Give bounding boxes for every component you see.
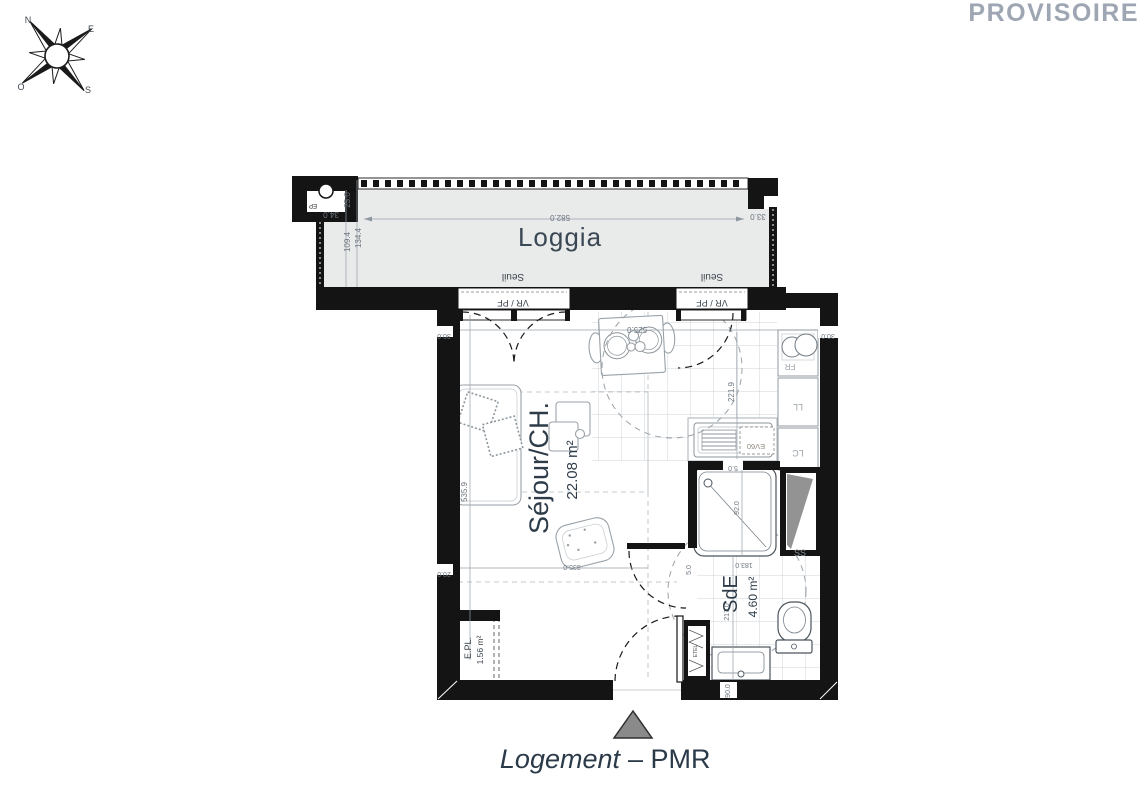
- dim-183: 183.0: [735, 561, 753, 568]
- compass-label-n: N: [25, 15, 32, 25]
- sink-drainboard: [702, 430, 736, 450]
- ep-drain-circle: [319, 184, 333, 198]
- epl-area: 1.56 m²: [475, 635, 485, 664]
- dim-90: 90.0: [725, 684, 732, 698]
- dim-5-top: 5.0: [728, 464, 738, 471]
- sde-title: SdE: [720, 575, 742, 613]
- seuil-label-2: Seuil: [701, 271, 723, 282]
- appliance-lc-label: LC: [792, 448, 804, 458]
- appliance-ll-label: LL: [793, 402, 803, 412]
- appliance-fr-label: FR: [784, 362, 795, 371]
- dim-20: 20.0: [437, 570, 451, 577]
- sink-label-ev60: EV60: [747, 442, 765, 451]
- technical-duct: [780, 467, 820, 556]
- dim-525: 525.0: [626, 325, 647, 334]
- sejour-title: Séjour/CH.: [524, 402, 554, 534]
- footer-title-name: Logement: [500, 744, 622, 774]
- wall-right: [820, 300, 838, 700]
- compass-star: [0, 0, 119, 118]
- dim-34: 34.0: [323, 210, 339, 219]
- etel-closet: ETEL: [684, 620, 710, 682]
- window-1-label: VR / PF: [497, 298, 529, 308]
- dim-134: 134.4: [354, 227, 363, 248]
- door-arc-entrance: [615, 616, 677, 681]
- footer: Logement – PMR: [500, 711, 711, 774]
- faucet-circle: [738, 671, 744, 677]
- ep-label: EP: [309, 202, 317, 208]
- toilet-tank: [776, 640, 812, 653]
- dim-5-door: 5.0: [686, 565, 693, 575]
- dim-30-left: 30.0: [437, 332, 451, 339]
- dim-30-right: 30.0: [821, 332, 835, 339]
- loggia-title: Loggia: [518, 222, 602, 252]
- door-arc-bath: [629, 551, 686, 608]
- window-frame-2: [678, 310, 746, 320]
- dim-92: 92.0: [734, 501, 741, 515]
- entrance-marker-triangle: [614, 711, 652, 738]
- appliance-ll: [778, 378, 818, 426]
- epl-wall-stub: [460, 610, 500, 621]
- footer-title-type: – PMR: [628, 744, 711, 774]
- sejour-area: 22.08 m²: [564, 440, 581, 499]
- room-sejour: FR LL LC EV60: [440, 298, 820, 682]
- dining-table: [588, 315, 677, 376]
- seuil-label-1: Seuil: [502, 271, 524, 282]
- kitchen-counter: EV60: [688, 418, 777, 461]
- dim-535: 535.9: [460, 481, 469, 502]
- compass-label-o: O: [17, 82, 24, 92]
- etel-label: ETEL: [693, 645, 699, 658]
- window-1: VR / PF: [458, 288, 570, 321]
- entrance-gap: [609, 680, 685, 700]
- wall-left: [437, 310, 460, 700]
- window-2-label: VR / PF: [696, 298, 728, 308]
- dim-582: 582.0: [549, 213, 570, 222]
- label-ss: SS: [794, 548, 806, 558]
- armchair: [553, 515, 616, 571]
- compass-label-s: S: [85, 85, 91, 95]
- floor-plan-canvas: PROVISOIRE N E O S EP: [0, 0, 1141, 800]
- lamp-circle: [576, 430, 585, 439]
- toilet: [776, 602, 812, 653]
- dim-221: 221.9: [727, 381, 736, 402]
- compass-label-e: E: [88, 24, 94, 34]
- wall-bath-left: [688, 461, 697, 548]
- sde-area: 4.60 m²: [746, 577, 760, 618]
- dim-25: 25.0: [343, 192, 352, 208]
- dim-335: 335.0: [563, 563, 581, 570]
- shower-drain: [704, 479, 712, 487]
- bath-door-leaf: [627, 543, 685, 549]
- washbasin: [712, 647, 770, 680]
- window-2: VR / PF: [676, 288, 748, 321]
- watermark-provisoire: PROVISOIRE: [968, 0, 1139, 27]
- epl-title: E.PL.: [463, 637, 473, 659]
- cooktop-circle-2: [795, 334, 817, 356]
- dim-109: 109.4: [343, 231, 352, 252]
- entrance-door-leaf: [677, 616, 683, 682]
- appliance-column: FR LL LC: [778, 330, 818, 470]
- compass-rose: N E O S: [0, 0, 119, 118]
- dim-33: 33.0: [750, 212, 766, 221]
- room-loggia: EP 582.0 33.0 34.0 25.0 109.4 134.4 Logg…: [292, 176, 778, 289]
